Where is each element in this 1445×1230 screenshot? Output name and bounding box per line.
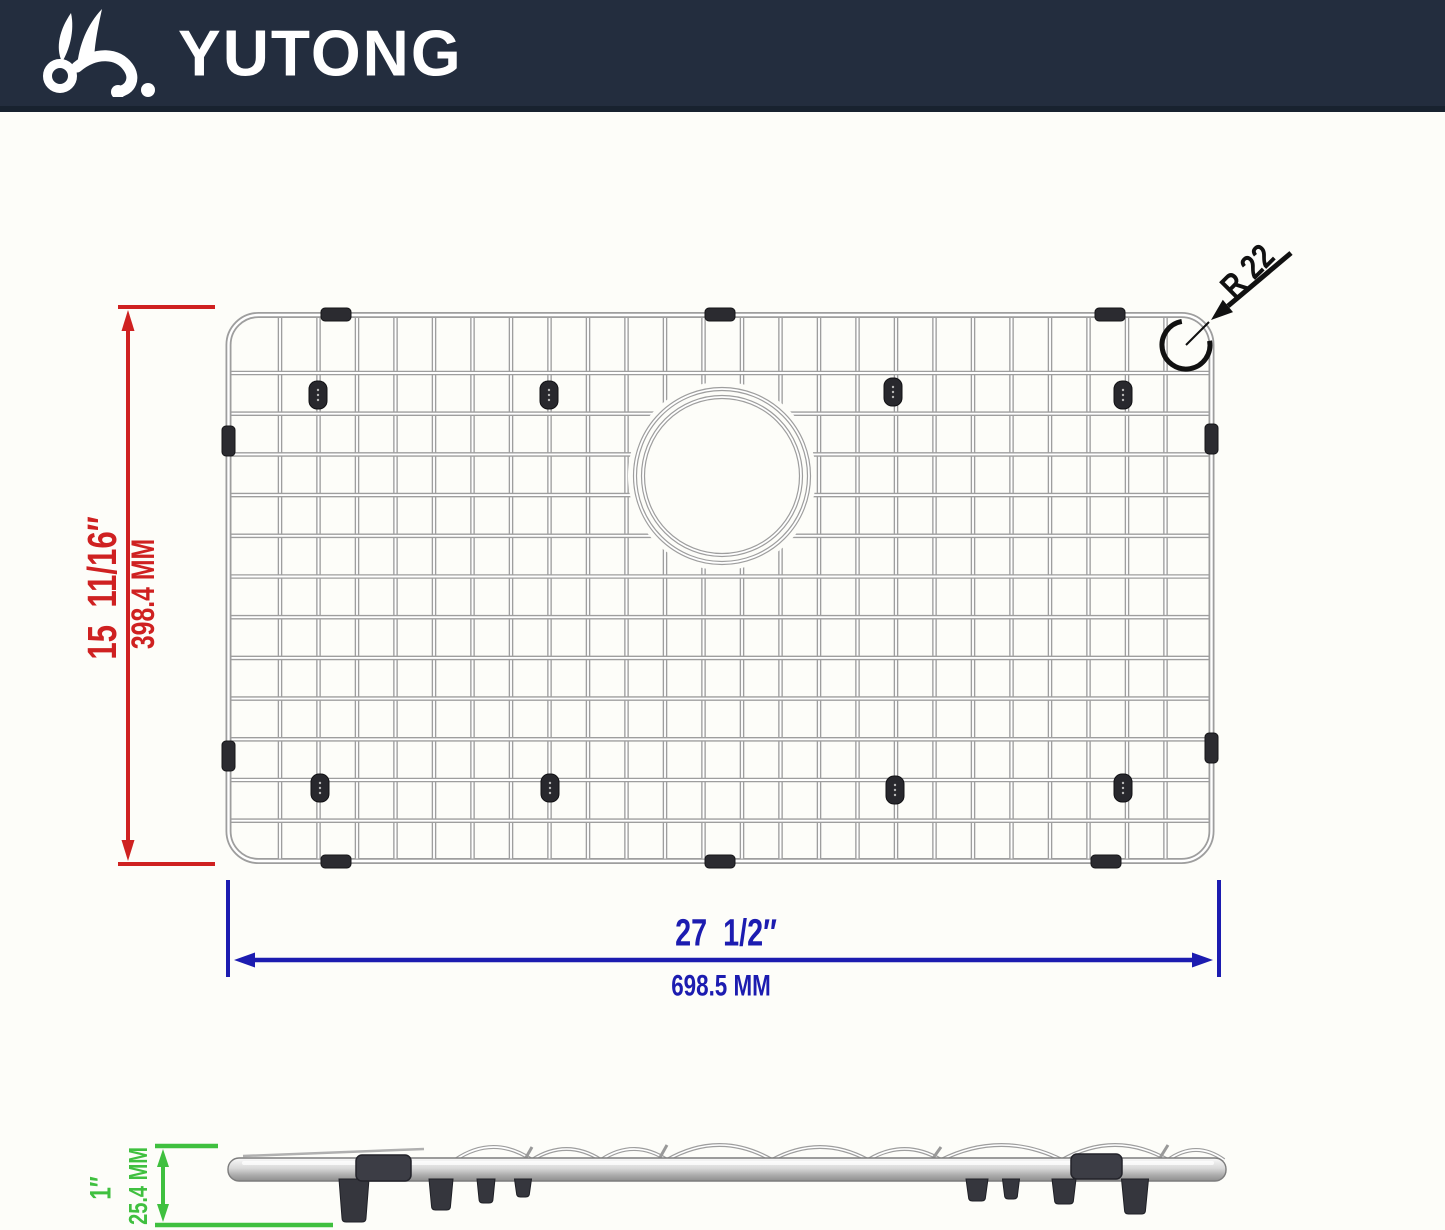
- brand-name: YUTONG: [178, 15, 463, 90]
- grid-side-view: [228, 1145, 1226, 1222]
- thickness-dimension-mm: 25.4 MM: [126, 1147, 152, 1225]
- rabbit-icon: [36, 9, 168, 97]
- grid-top-view: [222, 308, 1218, 868]
- thickness-dimension-inches: 1″: [86, 1176, 115, 1199]
- height-dimension-inches: 15 11/16″: [83, 516, 124, 659]
- height-dimension-mm: 398.4 MM: [127, 539, 160, 649]
- brand-header: YUTONG: [0, 0, 1445, 112]
- width-dimension-mm: 698.5 MM: [671, 971, 771, 1000]
- product-dimension-sheet: YUTONG 15 11/16″ 398.4 MM 27 1/2″ 698.5 …: [0, 0, 1445, 1230]
- dimension-diagram: 15 11/16″ 398.4 MM 27 1/2″ 698.5 MM 1″ 2…: [0, 112, 1445, 1230]
- drain-hole: [628, 382, 816, 570]
- width-dimension-inches: 27 1/2″: [675, 914, 777, 952]
